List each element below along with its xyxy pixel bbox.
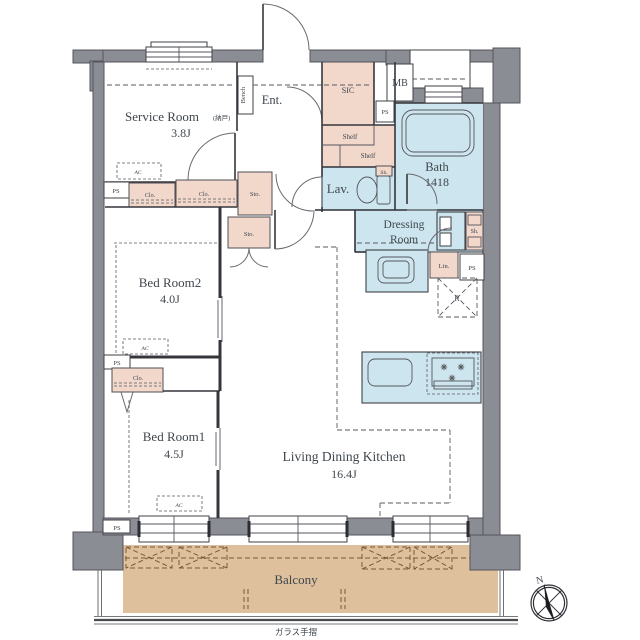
fridge-mark: R bbox=[454, 294, 460, 303]
shelf-label: Shelf bbox=[343, 133, 358, 141]
ac-label: AC bbox=[174, 503, 182, 509]
bath-label: Bath bbox=[425, 160, 449, 174]
bath-size: 1418 bbox=[425, 175, 449, 189]
floor-plan-canvas: Balcony ガラス手摺 bbox=[0, 0, 640, 640]
ac-label: AC bbox=[133, 170, 141, 176]
service-room-label: Service Room bbox=[125, 109, 199, 124]
compass: N bbox=[531, 574, 567, 621]
ps-label: PS bbox=[381, 109, 389, 116]
refrigerator-space: R bbox=[438, 278, 477, 317]
ps-label: PS bbox=[113, 525, 121, 532]
clo-label: Clo. bbox=[145, 193, 156, 199]
lav-door-arc bbox=[292, 177, 322, 207]
storage-door-arc bbox=[249, 248, 268, 267]
shelf-column: Sh. bbox=[466, 212, 483, 250]
shelf-label: Shelf bbox=[361, 152, 376, 160]
hall-door-arc bbox=[287, 87, 322, 122]
ac-label: AC bbox=[140, 346, 148, 352]
hall-storage: Sto. Sto. bbox=[228, 172, 337, 267]
sh-label: Sh. bbox=[380, 170, 388, 176]
closet-bifold-door bbox=[121, 392, 133, 412]
shelf-zone bbox=[322, 125, 395, 167]
clo-label: Clo. bbox=[133, 376, 144, 382]
ldk-size: 16.4J bbox=[331, 467, 357, 481]
ldk-balcony-window bbox=[248, 516, 349, 542]
bedroom1-balcony-window bbox=[138, 516, 211, 542]
sto-label: Sto. bbox=[244, 231, 255, 238]
entrance-label: Ent. bbox=[262, 93, 282, 107]
dressing-label-2: Room bbox=[390, 234, 418, 246]
kitchen-counter bbox=[362, 352, 481, 403]
ps-bottom-left: PS bbox=[103, 520, 130, 533]
washing-machine-icon bbox=[437, 212, 466, 250]
corridor-door-arc bbox=[276, 174, 313, 211]
bench-label: Bench bbox=[240, 86, 247, 103]
balcony: Balcony ガラス手摺 bbox=[94, 545, 518, 637]
bed-room-1-size: 4.5J bbox=[164, 447, 184, 461]
clo-label: Clo. bbox=[199, 192, 210, 198]
ldk-label: Living Dining Kitchen bbox=[283, 449, 406, 464]
bed-room-2-label: Bed Room2 bbox=[139, 275, 201, 290]
service-room-size: 3.8J bbox=[171, 126, 191, 140]
bath-window bbox=[425, 86, 462, 103]
kitchen-balcony-window bbox=[392, 516, 470, 542]
ps-label: PS bbox=[113, 360, 121, 367]
ps-label: PS bbox=[112, 188, 120, 195]
storage-door-arc bbox=[230, 248, 249, 267]
entrance-door-arc bbox=[263, 4, 309, 50]
ldk-door-arc bbox=[275, 210, 314, 249]
washbasin-icon bbox=[366, 250, 428, 292]
bed-room-1: PS Clo. Bed Room1 4.5J AC bbox=[104, 355, 220, 518]
compass-north-label: N bbox=[535, 574, 545, 586]
service-room: Service Room (納戸) 3.8J AC bbox=[105, 62, 237, 182]
bed-room-2: Bed Room2 4.0J AC bbox=[105, 207, 237, 357]
dressing-label-1: Dressing bbox=[384, 219, 425, 231]
bed-room-2-size: 4.0J bbox=[160, 292, 180, 306]
balcony-label: Balcony bbox=[274, 572, 318, 587]
sh-label: Sh. bbox=[471, 229, 479, 235]
ps-label: PS bbox=[468, 265, 476, 272]
service-door-arc bbox=[188, 133, 235, 180]
glass-railing-note: ガラス手摺 bbox=[275, 627, 317, 637]
sic-label: SIC bbox=[342, 86, 354, 95]
closet-row: PS Clo. Clo. bbox=[104, 180, 237, 207]
sto-label: Sto. bbox=[250, 191, 261, 198]
lin-label: Lin. bbox=[439, 263, 450, 270]
lav-label: Lav. bbox=[327, 181, 350, 196]
entrance: Bench Ent. bbox=[238, 4, 322, 122]
bed-room-1-label: Bed Room1 bbox=[143, 429, 205, 444]
service-room-window bbox=[146, 42, 212, 62]
service-room-suffix: (納戸) bbox=[213, 113, 230, 122]
floor-plan: Balcony ガラス手摺 bbox=[0, 0, 640, 640]
